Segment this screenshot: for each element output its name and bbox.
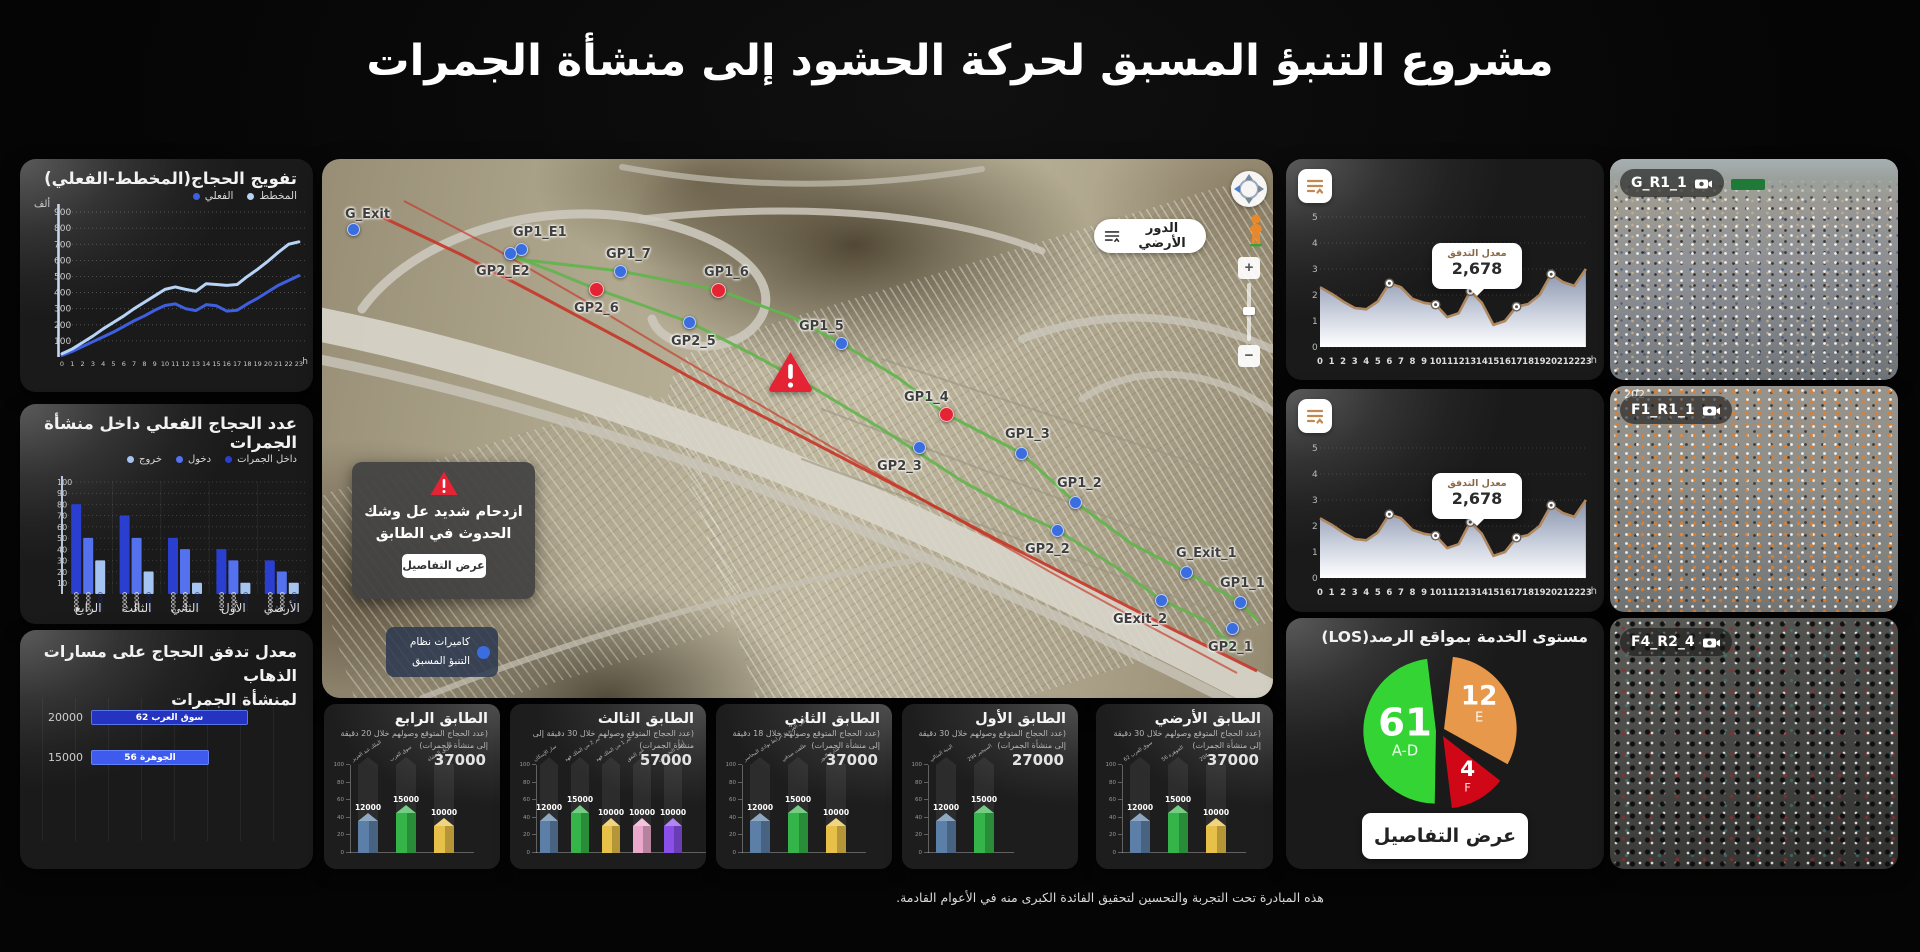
floor-selector-button[interactable]: الدور الأرضي (1094, 219, 1206, 253)
svg-text:500: 500 (54, 272, 71, 282)
page-title: مشروع التنبؤ المسبق لحركة الحشود إلى منش… (0, 36, 1920, 86)
svg-text:F: F (1464, 780, 1471, 794)
svg-text:4: 4 (1363, 588, 1369, 598)
warning-icon (429, 470, 459, 497)
floor-bar (396, 805, 416, 853)
camera-label: F4_R2_4 (1631, 634, 1695, 650)
svg-text:21: 21 (1557, 588, 1569, 598)
svg-text:1: 1 (1329, 588, 1335, 598)
tooltip-value: 2,678 (1432, 259, 1522, 278)
floor-mini-chart: 02040608010012000أعلى العزيزية الرابط بو… (716, 762, 892, 869)
svg-text:15: 15 (1487, 357, 1499, 367)
svg-text:10: 10 (1430, 588, 1442, 598)
camera-icon (1702, 404, 1721, 417)
map-marker-label: GP2_E2 (476, 264, 530, 279)
svg-text:9: 9 (153, 360, 157, 368)
zoom-in-button[interactable]: + (1238, 257, 1260, 279)
compass-control[interactable] (1231, 171, 1267, 207)
floor-panel-4: الطابق الأرضي(عدد الحجاج المتوقع وصولهم … (1096, 704, 1273, 869)
map-marker-label: GP1_7 (606, 247, 651, 262)
panel-flow-rate-bottom: 0123450123456789101112131415161718192021… (1286, 389, 1604, 612)
map-marker-label: GP2_3 (877, 459, 922, 474)
alert-text-line2: الحدوث في الطابق (352, 523, 535, 545)
panel-pilgrims-inside: عدد الحجاج الفعلي داخل منشأة الجمرات داخ… (20, 404, 313, 624)
svg-text:8: 8 (142, 360, 146, 368)
svg-text:h: h (1591, 355, 1597, 366)
los-details-button[interactable]: عرض التفاصيل (1362, 813, 1528, 859)
floor-bar (1130, 813, 1150, 853)
hbar-row: سوق العرب 62 20000 (48, 710, 248, 725)
panel-flow-paths: معدل تدفق الحجاج على مسارات الذهاب لمنشأ… (20, 630, 313, 869)
svg-text:10: 10 (1430, 357, 1442, 367)
svg-text:3: 3 (1312, 265, 1318, 275)
svg-text:13: 13 (1464, 588, 1476, 598)
camera-icon (1694, 177, 1713, 190)
floor-title: الطابق الأرضي (1096, 704, 1273, 727)
svg-text:1: 1 (1312, 317, 1318, 327)
svg-text:2: 2 (1340, 588, 1346, 598)
map-marker-label: GP1_5 (799, 319, 844, 334)
svg-text:9: 9 (1421, 357, 1427, 367)
svg-text:19: 19 (254, 360, 262, 368)
camera-dot-icon (477, 646, 490, 659)
svg-text:6: 6 (122, 360, 126, 368)
svg-text:14: 14 (1476, 588, 1488, 598)
map-marker-G_Exit[interactable] (347, 223, 360, 236)
svg-text:11: 11 (171, 360, 179, 368)
svg-text:4: 4 (1312, 239, 1318, 249)
flow-tooltip: معدل التدفق 2,678 (1432, 473, 1522, 519)
svg-text:11: 11 (1441, 357, 1453, 367)
svg-text:5: 5 (1375, 357, 1381, 367)
svg-text:الثاني: الثاني (171, 601, 199, 615)
svg-text:7: 7 (132, 360, 136, 368)
svg-text:4: 4 (101, 360, 105, 368)
svg-text:400: 400 (54, 289, 71, 299)
svg-text:2: 2 (1312, 522, 1318, 532)
svg-text:15: 15 (1487, 588, 1499, 598)
svg-text:16: 16 (1499, 588, 1511, 598)
tooltip-value: 2,678 (1432, 489, 1522, 508)
map-marker-label: G_Exit (345, 207, 390, 222)
svg-text:200: 200 (54, 321, 71, 331)
svg-text:5: 5 (1375, 588, 1381, 598)
svg-text:22: 22 (1568, 357, 1580, 367)
bar-chart: 102030405060708090100800005000030000الرا… (20, 404, 313, 624)
camera-label-pill: F4_R2_4 (1620, 628, 1732, 656)
svg-text:6: 6 (1386, 588, 1392, 598)
map-marker-GP2_1[interactable] (1226, 622, 1239, 635)
map-marker-GP2_5[interactable] (683, 316, 696, 329)
camera-label-pill: F1_R1_1 (1620, 396, 1732, 424)
map-marker-GP1_7[interactable] (614, 265, 627, 278)
svg-text:13: 13 (192, 360, 200, 368)
svg-text:22: 22 (284, 360, 292, 368)
svg-text:17: 17 (233, 360, 241, 368)
floor-selector-label: الدور الأرضي (1128, 221, 1196, 251)
floor-panel-1: الطابق الثالث(عدد الحجاج المتوقع وصولهم … (510, 704, 706, 869)
legend-text: كاميرات نظام (394, 633, 470, 652)
pie-chart: 61A-D12E4F (1354, 646, 1524, 816)
svg-text:300: 300 (54, 305, 71, 315)
svg-text:17: 17 (1511, 588, 1523, 598)
panel-flow-rate-top: 0123450123456789101112131415161718192021… (1286, 159, 1604, 380)
svg-text:4: 4 (1363, 357, 1369, 367)
tooltip-label: معدل التدفق (1432, 243, 1522, 259)
map-marker-label: GP2_1 (1208, 640, 1253, 655)
camera-label-pill: G_R1_1 (1620, 169, 1724, 197)
floor-panel-0: الطابق الرابع(عدد الحجاج المتوقع وصولهم … (324, 704, 500, 869)
hbar-value: 20000 (48, 711, 83, 724)
svg-text:الأرضي: الأرضي (264, 600, 300, 616)
chart-title: مستوى الخدمة بمواقع الرصد(LOS) (1286, 618, 1604, 646)
floor-bar (571, 805, 589, 853)
svg-text:0: 0 (1312, 574, 1318, 584)
line-chart: 1002003004005006007008009000123456789101… (20, 159, 313, 392)
zoom-out-button[interactable]: − (1238, 345, 1260, 367)
tooltip-label: معدل التدفق (1432, 473, 1522, 489)
floor-panel-3: الطابق الأول(عدد الحجاج المتوقع وصولهم خ… (902, 704, 1078, 869)
svg-text:11: 11 (1441, 588, 1453, 598)
svg-text:h: h (1591, 586, 1597, 597)
camera-feed-3[interactable]: F4_R2_4 (1610, 618, 1898, 869)
map-marker-label: GP1_4 (904, 390, 949, 405)
svg-text:1: 1 (1312, 548, 1318, 558)
svg-text:2: 2 (1340, 357, 1346, 367)
map-marker-GP1_5[interactable] (835, 337, 848, 350)
svg-text:9: 9 (1421, 588, 1427, 598)
svg-text:12: 12 (1453, 588, 1465, 598)
camera-feed-2[interactable]: 202F1_R1_1 (1610, 386, 1898, 612)
svg-text:h: h (302, 357, 308, 367)
svg-text:الثالث: الثالث (122, 601, 152, 615)
map-marker-GP1_1[interactable] (1234, 596, 1247, 609)
svg-text:8: 8 (1410, 357, 1416, 367)
map-marker-GP2_E2[interactable] (504, 247, 517, 260)
svg-text:13: 13 (1464, 357, 1476, 367)
panel-pilgrim-grouping: تفويج الحجاج(المخطط-الفعلي) المخطط الفعل… (20, 159, 313, 392)
map-marker-label: GP1_1 (1220, 576, 1265, 591)
svg-text:20: 20 (1545, 357, 1557, 367)
map-marker-GExit_2[interactable] (1155, 594, 1168, 607)
map-satellite[interactable]: G_ExitGP1_E1GP2_E2GP1_7GP2_6GP1_6GP2_5GP… (322, 159, 1273, 698)
map-marker-GP2_3[interactable] (913, 441, 926, 454)
pegman-icon[interactable] (1243, 213, 1269, 247)
svg-text:800: 800 (54, 224, 71, 234)
svg-text:17: 17 (1511, 357, 1523, 367)
map-marker-label: G_Exit_1 (1176, 546, 1237, 561)
flow-tooltip: معدل التدفق 2,678 (1432, 243, 1522, 289)
svg-text:22: 22 (1568, 588, 1580, 598)
map-marker-label: GP1_6 (704, 265, 749, 280)
svg-text:E: E (1475, 711, 1483, 726)
svg-text:1: 1 (1329, 357, 1335, 367)
svg-text:21: 21 (1557, 357, 1569, 367)
map-marker-GP1_4[interactable] (939, 407, 954, 422)
floor-title: الطابق الثالث (510, 704, 706, 727)
map-camera-legend: كاميرات نظام التنبؤ المسبق (386, 627, 498, 677)
map-marker-GP2_6[interactable] (589, 282, 604, 297)
floor-bar (936, 813, 956, 853)
svg-text:8: 8 (1410, 588, 1416, 598)
svg-text:20: 20 (264, 360, 272, 368)
svg-text:5: 5 (1312, 444, 1318, 454)
floor-mini-chart: 02040608010012000الملك عبد العزيز15000سو… (324, 762, 500, 869)
camera-label: F1_R1_1 (1631, 402, 1695, 418)
map-alert-popup: ازدحام شديد عل وشك الحدوث في الطابق عرض … (352, 462, 535, 599)
camera-feed-1[interactable]: G_R1_1 (1610, 159, 1898, 380)
floor-title: الطابق الرابع (324, 704, 500, 727)
map-marker-G_Exit_1[interactable] (1180, 566, 1193, 579)
svg-text:7: 7 (1398, 357, 1404, 367)
map-marker-label: GP1_E1 (513, 225, 567, 240)
svg-text:2: 2 (81, 360, 85, 368)
floor-bar (358, 813, 378, 853)
svg-text:1: 1 (70, 360, 74, 368)
svg-text:14: 14 (1476, 357, 1488, 367)
svg-text:12: 12 (181, 360, 189, 368)
map-alert-icon[interactable] (767, 349, 814, 395)
map-marker-GP1_6[interactable] (711, 283, 726, 298)
svg-text:18: 18 (1522, 588, 1534, 598)
floor-bar (540, 813, 558, 853)
floor-bar (750, 813, 770, 853)
map-marker-label: GP1_3 (1005, 427, 1050, 442)
svg-text:600: 600 (54, 256, 71, 266)
map-marker-label: GExit_2 (1113, 612, 1167, 627)
panel-los: مستوى الخدمة بمواقع الرصد(LOS) 61A-D12E4… (1286, 618, 1604, 869)
svg-text:18: 18 (243, 360, 251, 368)
svg-text:6: 6 (1386, 357, 1392, 367)
svg-text:0: 0 (60, 360, 64, 368)
hbar-aljawhara: الجوهرة 56 (91, 750, 209, 765)
map-marker-label: GP2_5 (671, 334, 716, 349)
floor-bar (788, 805, 808, 853)
svg-text:16: 16 (1499, 357, 1511, 367)
map-marker-GP1_3[interactable] (1015, 447, 1028, 460)
layers-list-icon (1104, 228, 1120, 244)
floor-bar (1168, 805, 1188, 853)
svg-text:2: 2 (1312, 291, 1318, 301)
svg-text:700: 700 (54, 240, 71, 250)
floor-mini-chart: 02040608010012000سوق العرب 6215000الجوهر… (1096, 762, 1273, 869)
map-marker-label: GP1_2 (1057, 476, 1102, 491)
svg-text:3: 3 (1352, 357, 1358, 367)
svg-text:A-D: A-D (1392, 743, 1418, 760)
svg-text:18: 18 (1522, 357, 1534, 367)
floor-title: الطابق الأول (902, 704, 1078, 727)
svg-text:3: 3 (91, 360, 95, 368)
hbar-value: 15000 (48, 751, 83, 764)
svg-text:0: 0 (1317, 588, 1323, 598)
svg-text:20: 20 (1545, 588, 1557, 598)
alert-details-button[interactable]: عرض التفاصيل (402, 554, 486, 578)
svg-text:19: 19 (1534, 588, 1546, 598)
svg-text:100: 100 (54, 337, 71, 347)
svg-text:3: 3 (1352, 588, 1358, 598)
floor-mini-chart: 02040608010012000سار الإسكان15000بير 2 م… (510, 762, 706, 869)
floor-mini-chart: 02040608010012000البنية المثالي15000السي… (902, 762, 1078, 869)
svg-text:3: 3 (1312, 496, 1318, 506)
svg-text:4: 4 (1312, 470, 1318, 480)
svg-text:19: 19 (1534, 357, 1546, 367)
zoom-slider-handle[interactable] (1243, 307, 1255, 315)
svg-text:12: 12 (1461, 682, 1498, 712)
svg-text:4: 4 (1460, 757, 1475, 782)
svg-text:900: 900 (54, 208, 71, 218)
floor-bar (974, 805, 994, 853)
svg-text:61: 61 (1378, 701, 1432, 746)
legend-text: التنبؤ المسبق (394, 652, 470, 671)
camera-label: G_R1_1 (1631, 175, 1687, 191)
svg-text:15: 15 (212, 360, 220, 368)
floor-panel-2: الطابق الثاني(عدد الحجاج المتوقع وصولهم … (716, 704, 892, 869)
zoom-slider[interactable] (1247, 283, 1251, 341)
hbar-plot: سوق العرب 62 20000 الجوهرة 56 15000 (42, 698, 299, 841)
svg-text:5: 5 (1312, 213, 1318, 223)
alert-text-line1: ازدحام شديد عل وشك (352, 501, 535, 523)
hbar-souq-alarab: سوق العرب 62 (91, 710, 248, 725)
svg-text:الأول: الأول (221, 600, 246, 616)
hbar-row: الجوهرة 56 15000 (48, 750, 209, 765)
svg-text:الرابع: الرابع (75, 601, 102, 616)
map-marker-label: GP2_2 (1025, 542, 1070, 557)
svg-text:5: 5 (111, 360, 115, 368)
svg-text:16: 16 (223, 360, 231, 368)
map-nav-controls: + − (1229, 171, 1269, 371)
svg-text:14: 14 (202, 360, 210, 368)
map-marker-GP1_2[interactable] (1069, 496, 1082, 509)
svg-text:10: 10 (161, 360, 169, 368)
svg-text:0: 0 (1312, 343, 1318, 353)
map-marker-label: GP2_6 (574, 301, 619, 316)
svg-text:12: 12 (1453, 357, 1465, 367)
svg-text:100: 100 (57, 478, 72, 487)
camera-icon (1702, 636, 1721, 649)
map-marker-GP2_2[interactable] (1051, 524, 1064, 537)
footer-note: هذه المبادرة تحت التجربة والتحسين لتحقيق… (300, 890, 1920, 905)
svg-text:21: 21 (274, 360, 282, 368)
svg-text:0: 0 (1317, 357, 1323, 367)
dashboard-root: مشروع التنبؤ المسبق لحركة الحشود إلى منش… (0, 0, 1920, 952)
svg-text:7: 7 (1398, 588, 1404, 598)
